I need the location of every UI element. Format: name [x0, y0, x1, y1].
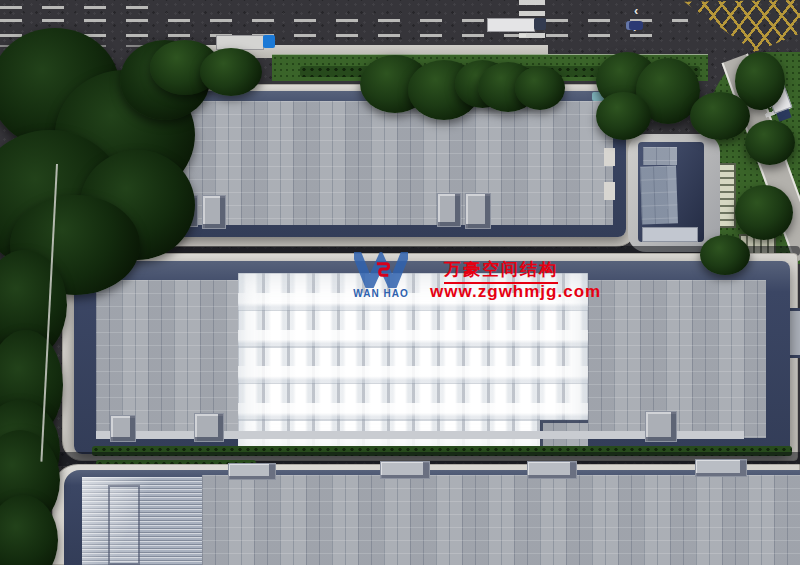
rooftop-access-box [645, 411, 677, 442]
rooftop-access-box [110, 415, 136, 442]
rooftop-access-box [465, 193, 491, 229]
tree-cluster [596, 92, 651, 140]
rooftop-access-box [228, 463, 276, 480]
road-lane-marking [0, 19, 688, 22]
truck-cab [263, 35, 275, 48]
rooftop-access-box [695, 459, 747, 477]
warehouse-roof [202, 475, 800, 565]
watermark-logo-text: WAN HAO [348, 288, 414, 299]
watermark-website: www.zgwhmjg.com [430, 282, 601, 302]
rooftop-access-box [437, 193, 461, 227]
box-junction-marking [678, 0, 800, 56]
warehouse-roof-ribbed [82, 477, 202, 565]
truck [487, 18, 535, 32]
aerial-site-rendering: ‹ ‹ [0, 0, 800, 565]
warehouse-roof [588, 280, 766, 438]
roof-notch [604, 148, 615, 166]
rooftop-access-box [202, 195, 226, 229]
tree-cluster [200, 48, 262, 96]
wanhao-logo-icon [354, 252, 408, 288]
rooftop-access-box [194, 413, 224, 442]
lane-arrow-icon: ‹ [634, 6, 638, 16]
rooftop-access-box [380, 461, 430, 479]
gatehouse-roof [643, 147, 677, 165]
road-lane-marking [0, 34, 658, 37]
road-lane-marking [0, 6, 150, 9]
roof-riser [108, 485, 140, 565]
tree-cluster [515, 66, 565, 110]
tree-cluster [690, 92, 750, 140]
rooftop-access-box [527, 461, 577, 479]
roof-notch [604, 182, 615, 200]
gatehouse-roof [642, 227, 698, 242]
gatehouse-roof [640, 165, 678, 224]
watermark-company-name: 万豪空间结构 [444, 258, 558, 284]
tree-cluster [745, 120, 795, 165]
truck-cab [534, 18, 546, 30]
car [626, 21, 643, 30]
tree-cluster [700, 235, 750, 275]
tree-cluster [735, 185, 793, 240]
watermark: WAN HAO 万豪空间结构 www.zgwhmjg.com [348, 252, 598, 304]
